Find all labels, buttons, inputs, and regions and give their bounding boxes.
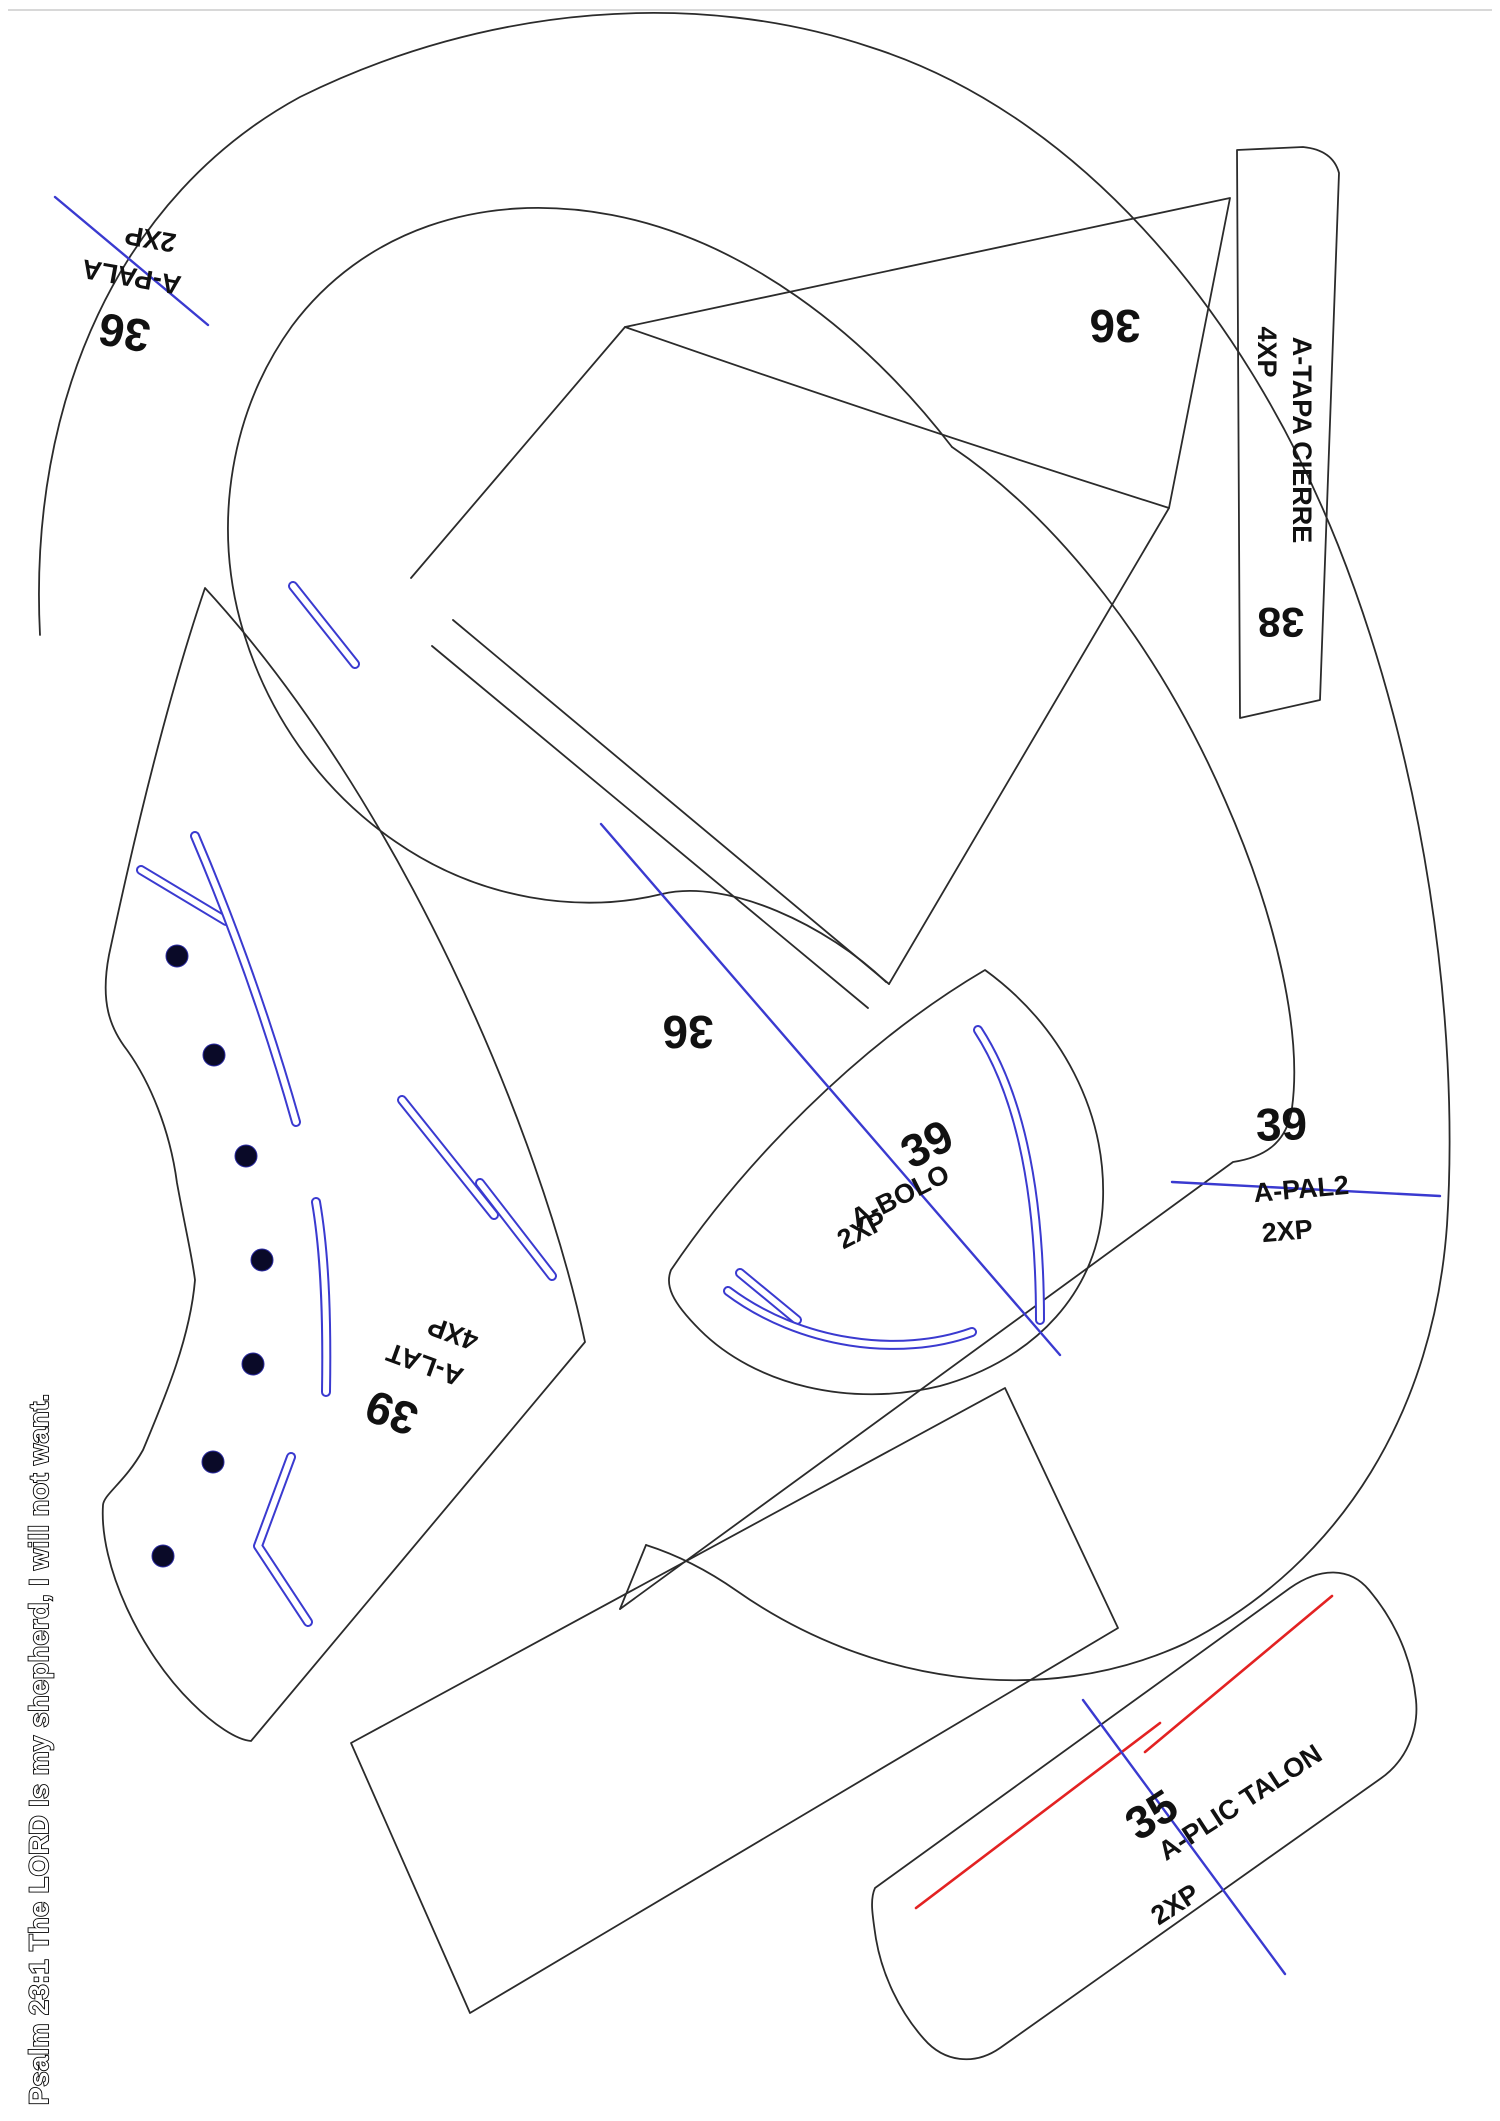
stitch-slot-core <box>293 586 355 664</box>
psalm-caption: Psalm 23:1 The LORD Is my shepherd, I wi… <box>24 1393 54 2105</box>
a-lat-size: 39 <box>359 1380 425 1446</box>
piece-mid-wedge-line-a <box>453 620 889 984</box>
piece-mid-wedge-line-c <box>889 508 1169 984</box>
stitch-slot-core <box>402 1100 494 1215</box>
a-pala-size: 36 <box>95 303 154 363</box>
a-pal2-name: A-PAL2 <box>1252 1170 1350 1208</box>
lace-hole <box>235 1145 257 1167</box>
a-pala-qty: 2XP <box>123 220 178 258</box>
label-a-pal2: 39 A-PAL2 2XP <box>1252 1097 1350 1248</box>
label-a-pala: 36 A-PALA 2XP <box>80 220 184 363</box>
lace-hole <box>203 1044 225 1066</box>
lace-hole <box>152 1545 174 1567</box>
lace-hole <box>166 945 188 967</box>
stitch-slots <box>141 586 797 1622</box>
a-lat-qty: 4XP <box>424 1311 482 1357</box>
lace-hole <box>251 1249 273 1271</box>
lace-hole <box>202 1451 224 1473</box>
mid-panel-size: 36 <box>662 1006 713 1058</box>
piece-bottom-panel-outline <box>351 1388 1118 2013</box>
piece-a-lat-outline <box>103 588 585 1741</box>
label-a-plic-talon: 35 A-PLIC TALON 2XP <box>1116 1739 1328 1931</box>
heel-marking-line-upper <box>1145 1596 1332 1752</box>
a-tapa-cierre-name: A-TAPA CIERRE <box>1287 337 1317 544</box>
piece-a-pala-inner-hook <box>228 208 952 982</box>
top-panel-apex-arm <box>411 327 625 578</box>
a-pal2-qty: 2XP <box>1260 1214 1313 1248</box>
pattern-sheet: 36 A-PALA 2XP 36 36 A-TAPA CIERRE 4XP 38… <box>0 0 1500 2121</box>
label-a-lat: 39 A-LAT 4XP <box>359 1311 482 1447</box>
pattern-canvas: 36 A-PALA 2XP 36 36 A-TAPA CIERRE 4XP 38… <box>0 0 1500 2121</box>
stitch-slot-core <box>978 1030 1040 1320</box>
label-a-tapa-cierre: A-TAPA CIERRE 4XP 38 <box>1252 326 1317 646</box>
lace-hole <box>242 1353 264 1375</box>
a-plic-talon-name: A-PLIC TALON <box>1153 1739 1327 1867</box>
label-a-bolo: 39 A-BOLO 2XP <box>832 1109 961 1255</box>
a-tapa-cierre-size: 38 <box>1258 599 1305 646</box>
stitch-slot-core <box>480 1183 552 1276</box>
grain-line-a-pala <box>55 197 208 325</box>
a-tapa-cierre-qty: 4XP <box>1252 326 1282 377</box>
top-panel-size: 36 <box>1089 300 1140 352</box>
piece-top-panel-outline <box>625 198 1230 508</box>
a-pal2-size: 39 <box>1255 1097 1308 1151</box>
piece-mid-wedge-line-b <box>432 646 868 1008</box>
piece-a-pal2-inner-outline <box>620 447 1294 1609</box>
